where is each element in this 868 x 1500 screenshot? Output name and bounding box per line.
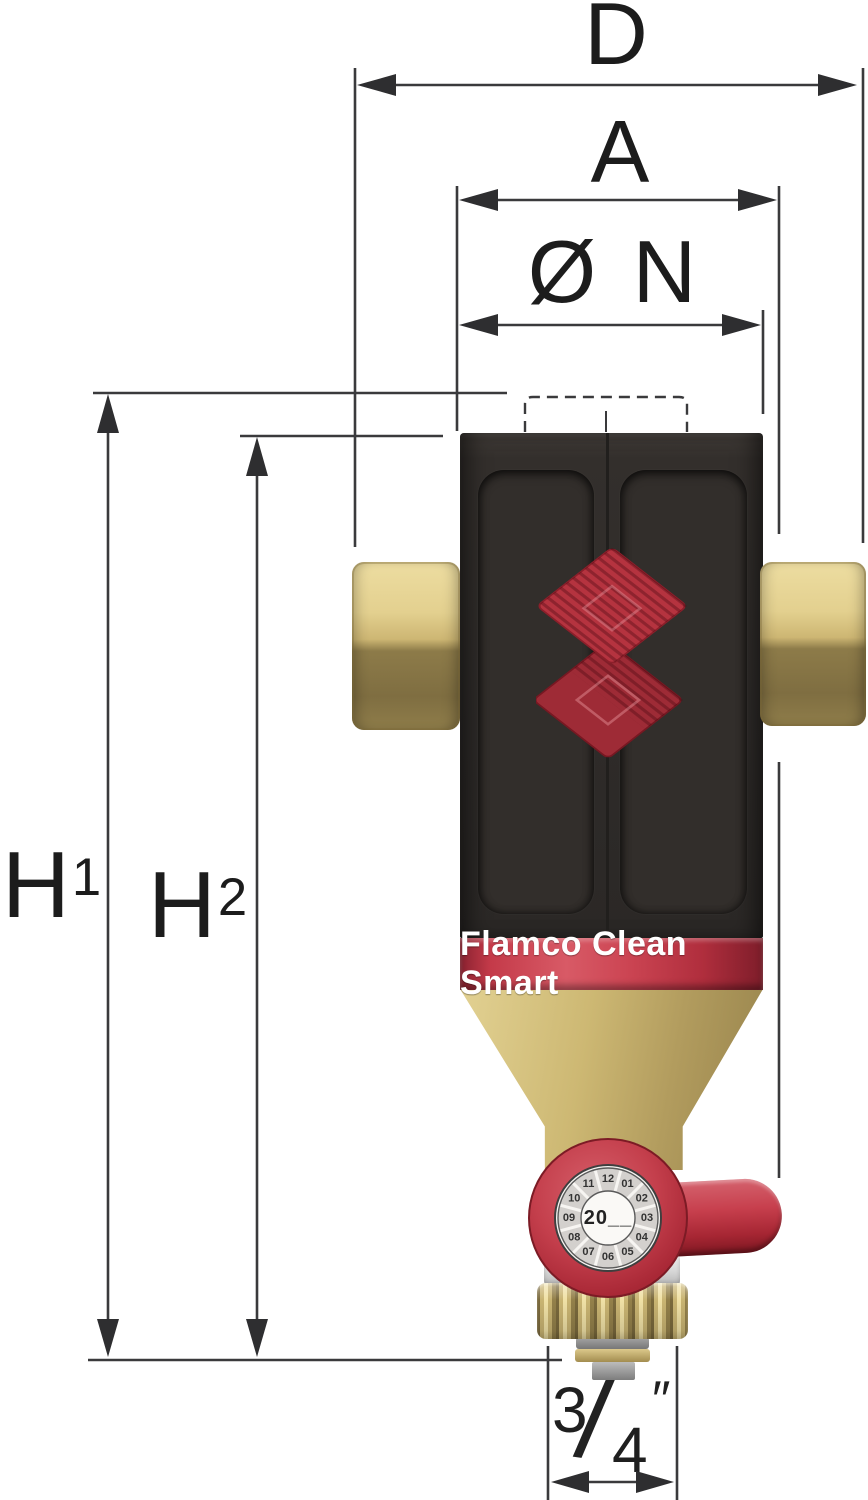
- dial-month-07: 07: [582, 1246, 594, 1258]
- hidden-top-connection-outline: [525, 397, 687, 432]
- h2-base: H: [148, 852, 216, 957]
- dial-month-10: 10: [568, 1193, 580, 1205]
- arrowhead-left: [459, 189, 498, 211]
- arrowhead-left: [459, 314, 498, 336]
- dial-month-11: 11: [583, 1178, 595, 1190]
- dial-month-06: 06: [602, 1251, 614, 1263]
- product-name-text: Flamco Clean Smart: [460, 925, 763, 1003]
- service-date-dial: 12 01 02 03 04 05 06 07 08 09 10 11 20__: [553, 1163, 663, 1273]
- arrowhead-right: [738, 189, 777, 211]
- arrowhead-right: [818, 74, 857, 96]
- union-nut-right: [760, 562, 866, 726]
- dimension-n: [459, 310, 763, 414]
- dial-year-text: 20__: [553, 1207, 663, 1230]
- arrowhead-up: [246, 437, 268, 476]
- drain-inch-mark: ″: [652, 1374, 670, 1426]
- dimension-label-drain-size: 3 / 4 ″: [548, 1376, 683, 1488]
- drain-spout-nub: [592, 1362, 635, 1380]
- product-name-band: Flamco Clean Smart: [460, 938, 763, 990]
- drain-brass-ring: [575, 1349, 650, 1362]
- dial-month-12: 12: [602, 1173, 614, 1185]
- dial-month-02: 02: [636, 1193, 648, 1205]
- dial-month-05: 05: [621, 1246, 633, 1258]
- h1-base: H: [2, 832, 70, 937]
- arrowhead-up: [97, 394, 119, 433]
- arrowhead-down: [97, 1319, 119, 1357]
- dimension-label-diameter-n: Ø N: [520, 228, 710, 316]
- drawing-canvas: D A Ø N H1 H2 3 / 4 ″: [0, 0, 868, 1500]
- dimension-label-a: A: [560, 108, 680, 196]
- union-nut-left: [352, 562, 460, 730]
- dial-month-08: 08: [568, 1232, 580, 1244]
- dial-month-04: 04: [636, 1232, 648, 1244]
- drain-fraction-denominator: 4: [612, 1418, 648, 1482]
- dimension-label-h2: H2: [148, 858, 247, 952]
- flamco-logo: [536, 548, 688, 765]
- dimension-label-h1: H1: [2, 838, 101, 932]
- arrowhead-down: [246, 1319, 268, 1357]
- arrowhead-left: [357, 74, 396, 96]
- flamco-logo-graphic: [536, 548, 688, 760]
- logo-upper-diamond: [537, 548, 687, 664]
- dimension-label-d: D: [556, 0, 676, 78]
- dial-month-01: 01: [621, 1178, 633, 1190]
- arrowhead-right: [722, 314, 761, 336]
- h2-superscript: 2: [218, 868, 247, 927]
- h1-superscript: 1: [72, 848, 101, 907]
